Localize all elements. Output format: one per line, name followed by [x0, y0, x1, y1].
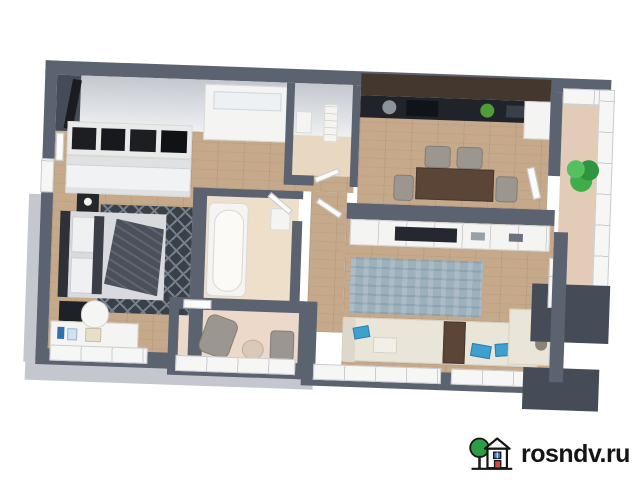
entry-door: [55, 133, 64, 161]
cosmetic-jar: [67, 328, 77, 340]
rosndv-logo-icon: [468, 434, 514, 474]
watermark-text: rosndv.ru: [521, 440, 630, 469]
sofa-pillow-blue-1: [353, 325, 371, 340]
sofa-pillow-blue-2: [470, 343, 492, 359]
dresser-front: [66, 164, 190, 191]
double-bed: [58, 211, 167, 301]
bathtub: [206, 202, 249, 297]
tv-screen: [395, 227, 457, 243]
wc-radiator: [323, 104, 338, 142]
cooktop: [406, 100, 439, 117]
desk-books: [85, 328, 101, 343]
green-plate: [480, 103, 494, 117]
shelf-decor-1: [471, 232, 485, 240]
console-cabinet: [203, 84, 289, 143]
nightstand: [77, 193, 100, 212]
wc-bottom-wall: [284, 175, 314, 186]
sofa-side-table: [442, 321, 465, 364]
desk-chair: [80, 300, 109, 329]
wardrobe-open-shelves: [66, 121, 192, 159]
cosmetic-bottle-blue: [57, 327, 64, 339]
wardrobe-clothes-2: [101, 128, 126, 151]
dining-table: [415, 167, 494, 202]
wardrobe-clothes-4: [161, 130, 188, 153]
watermark: rosndv.ru: [468, 434, 630, 474]
right-corner-wall-upper: [530, 283, 610, 344]
dining-chair-2: [456, 147, 483, 170]
console-frosted-panel: [213, 91, 282, 111]
loggia-bench: [269, 330, 294, 361]
wardrobe-dresser: [65, 155, 191, 197]
dining-chair-1: [424, 145, 451, 168]
shelf-decor-2: [509, 233, 523, 241]
bedroom-window: [49, 345, 147, 364]
wardrobe-clothes-3: [130, 129, 157, 152]
bathtub-basin: [212, 209, 245, 292]
sofa-throw: [373, 337, 398, 354]
wc-washbasin: [295, 111, 312, 134]
floorplan: [28, 54, 622, 420]
table-lamp: [84, 198, 92, 206]
kitchen-sink: [382, 100, 396, 114]
wardrobe-clothes-1: [72, 127, 97, 150]
dining-chair-4: [495, 176, 518, 203]
living-rug: [349, 257, 483, 318]
loggia-door: [183, 299, 211, 309]
bathroom-right-wall: [289, 221, 302, 303]
left-wall-window: [40, 158, 54, 192]
sofa-left-arm: [342, 318, 356, 362]
dining-chair-3: [393, 174, 414, 201]
